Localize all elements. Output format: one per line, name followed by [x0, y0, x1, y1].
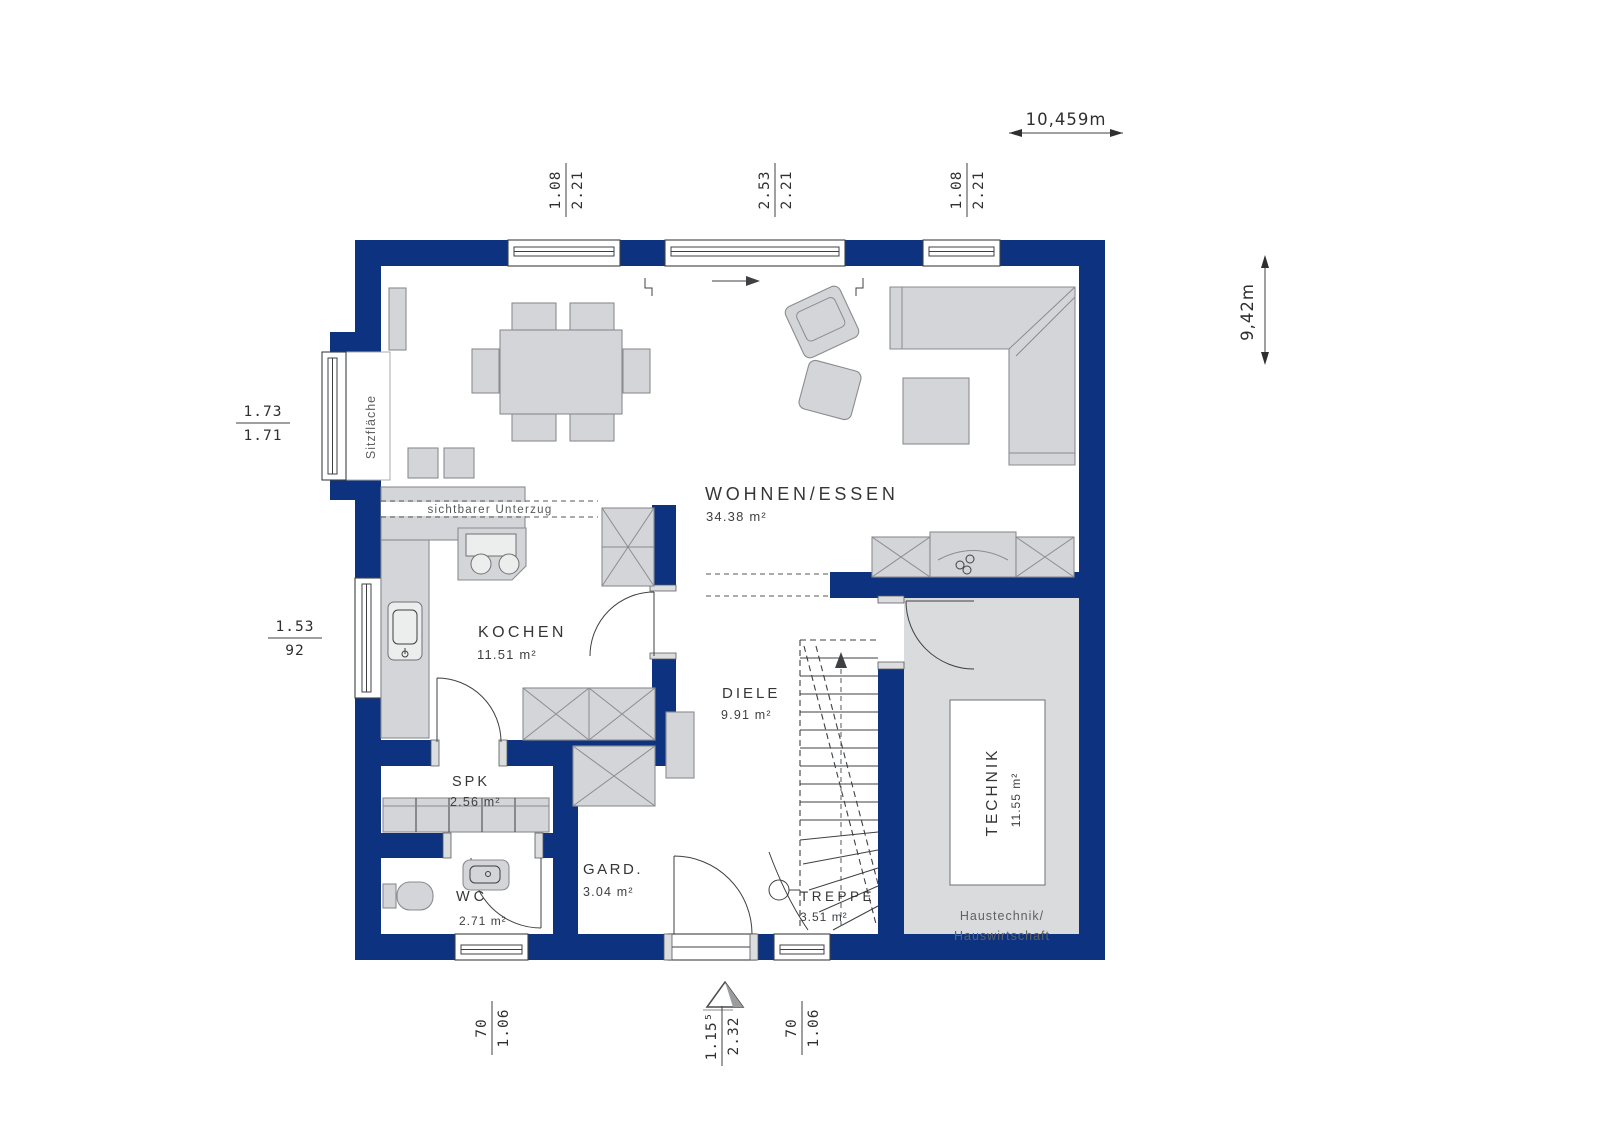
burner: [471, 554, 491, 574]
tall-cabinet: [602, 508, 654, 586]
hall-bench: [666, 712, 694, 778]
burner: [499, 554, 519, 574]
window-frame: [322, 352, 346, 480]
dining-chair: [472, 349, 499, 393]
dim-overall-height-value: 9,42m: [1238, 283, 1257, 341]
dining-chair: [570, 414, 614, 441]
stool: [408, 448, 438, 478]
sideboard-center: [930, 532, 1016, 577]
dining-chair: [512, 303, 556, 330]
slide-direction-arrow: [712, 276, 760, 286]
window-top-1: [508, 240, 620, 266]
arrow-head: [746, 276, 760, 286]
dim-overall-height: 9,42m: [1238, 255, 1269, 365]
passage-living-diele: [706, 574, 830, 596]
radiator: [389, 288, 406, 350]
dining-table: [500, 330, 622, 414]
armchair-1: [783, 284, 861, 360]
dining-chair: [623, 349, 650, 393]
walkline-arrow: [835, 652, 847, 668]
stool: [444, 448, 474, 478]
toilet-tank: [383, 884, 396, 908]
sideboard: [872, 532, 1074, 577]
entrance-marker: [703, 982, 743, 1010]
window-left-kitchen: [355, 578, 381, 698]
dim-height: 1.06: [496, 1009, 512, 1048]
dim-window-left-2: 1.53 92: [268, 619, 322, 659]
dim-width: 2.53: [757, 171, 773, 210]
dim-width: 1.08: [548, 171, 564, 210]
dim-overall-width: 10,459m: [1009, 110, 1123, 137]
dim-window-top-3: 1.08 2.21: [949, 163, 987, 217]
dim-height: 2.21: [971, 171, 987, 210]
room-area-treppe: 3.51 m²: [800, 910, 848, 924]
dim-window-bottom-2: 70 1.06: [784, 1001, 822, 1055]
staircase: [769, 640, 878, 930]
walkline-start: [769, 880, 789, 900]
arrow-down: [1261, 352, 1269, 365]
beam-label: sichtbarer Unterzug: [427, 504, 552, 516]
room-area-spk: 2.56 m²: [450, 795, 501, 809]
room-area-gard: 3.04 m²: [583, 885, 634, 899]
hob: [466, 534, 516, 556]
toilet-bowl: [397, 882, 433, 910]
dining-chair: [570, 303, 614, 330]
dim-window-top-1: 1.08 2.21: [548, 163, 586, 217]
dim-height: 2.21: [779, 171, 795, 210]
dim-width: 1.53: [276, 619, 315, 635]
window-bottom-1: [455, 934, 528, 960]
dim-width: 1.15⁵: [704, 1012, 720, 1061]
window-frame: [665, 240, 845, 266]
wc-fixtures: [383, 860, 509, 910]
dim-height: 2.32: [726, 1017, 742, 1056]
dim-height: 1.71: [244, 428, 283, 444]
armchair-body: [783, 284, 861, 360]
room-label-technik: TECHNIK: [984, 747, 1001, 836]
room-area-wc: 2.71 m²: [459, 914, 507, 928]
floor-plan: sichtbarer Unterzug: [0, 0, 1600, 1132]
bay-window-seat: [322, 352, 390, 480]
entrance-opening: [668, 934, 756, 960]
technik-note-2: Hauswirtschaft: [954, 929, 1050, 943]
room-area-technik: 11.55 m²: [1009, 773, 1023, 827]
window-top-3: [923, 240, 1000, 266]
room-area-diele: 9.91 m²: [721, 708, 772, 722]
room-area-technik-group: 11.55 m²: [1009, 773, 1023, 827]
window-frame: [774, 934, 830, 960]
armchair-2: [797, 359, 862, 421]
dining-set: [472, 303, 650, 441]
armchair-body: [797, 359, 862, 421]
room-label-gard: GARD.: [583, 861, 643, 878]
window-frame: [455, 934, 528, 960]
dim-entrance-door: 1.15⁵ 2.32: [704, 1006, 742, 1066]
dim-window-top-2: 2.53 2.21: [757, 163, 795, 217]
dim-height: 92: [285, 643, 304, 659]
arrow-left: [1009, 129, 1022, 137]
stair-treads: [800, 658, 878, 820]
dim-width: 1.08: [949, 171, 965, 210]
floor-plan-canvas: sichtbarer Unterzug: [0, 0, 1600, 1132]
window-frame: [355, 578, 381, 698]
kitchen-door: [590, 592, 654, 656]
visible-beam: sichtbarer Unterzug: [381, 501, 598, 517]
entrance-door: [674, 856, 752, 934]
arrow-up: [1261, 255, 1269, 268]
room-area-wohnen: 34.38 m²: [706, 509, 767, 524]
dim-height: 2.21: [570, 171, 586, 210]
window-bottom-2: [774, 934, 830, 960]
room-label-wohnen: WOHNEN/ESSEN: [705, 484, 899, 504]
dim-width: 1.73: [244, 404, 283, 420]
room-label-technik-group: TECHNIK: [984, 747, 1001, 836]
spk-door: [437, 678, 501, 742]
dim-width: 70: [474, 1018, 490, 1037]
kitchen-counter: [381, 487, 526, 738]
window-seat-label-group: Sitzfläche: [364, 395, 378, 459]
technik-note-1: Haustechnik/: [960, 909, 1044, 923]
room-label-treppe: TREPPE: [800, 889, 875, 904]
gard-cabinet: [573, 746, 655, 806]
arrow-right: [1110, 129, 1123, 137]
dim-overall-width-value: 10,459m: [1026, 110, 1107, 129]
window-top-2: [665, 240, 845, 266]
dim-height: 1.06: [806, 1009, 822, 1048]
diele-cabinet: [523, 688, 655, 740]
kitchen-stools: [408, 448, 474, 478]
window-frame: [508, 240, 620, 266]
room-label-kochen: KOCHEN: [478, 624, 567, 641]
room-label-spk: SPK: [452, 774, 490, 790]
dining-chair: [512, 414, 556, 441]
dim-window-left-1: 1.73 1.71: [236, 404, 290, 444]
dim-window-bottom-1: 70 1.06: [474, 1001, 512, 1055]
window-seat-label: Sitzfläche: [364, 395, 378, 459]
dim-width: 70: [784, 1018, 800, 1037]
room-label-wc: WC: [456, 889, 488, 905]
coffee-table: [903, 378, 969, 444]
room-label-diele: DIELE: [722, 685, 780, 702]
room-area-kochen: 11.51 m²: [477, 647, 537, 662]
window-frame: [923, 240, 1000, 266]
